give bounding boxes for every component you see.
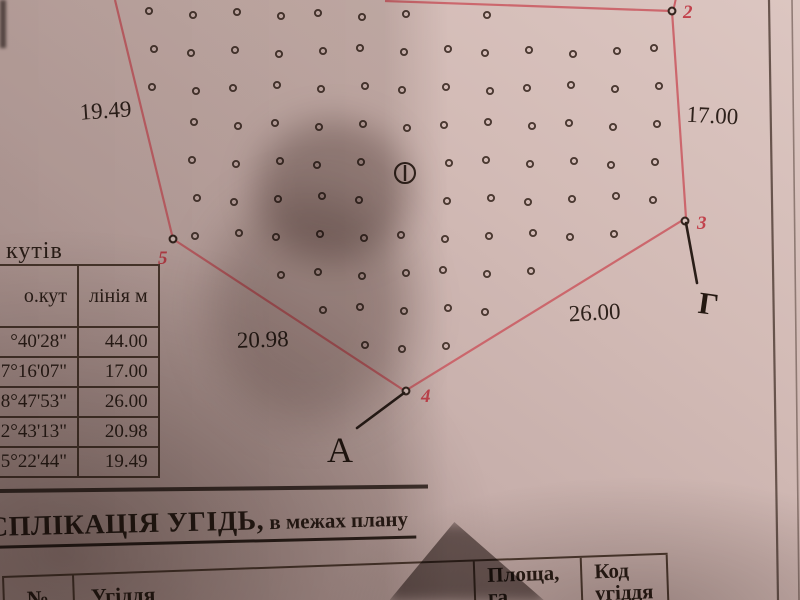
angle-value: 2°43'13" [0, 417, 78, 447]
land-use-dot [277, 158, 283, 164]
table-row: °40'28" 44.00 [0, 327, 159, 357]
land-use-dot [399, 346, 405, 352]
land-use-dot [651, 45, 657, 51]
land-use-dot [610, 124, 616, 130]
land-use-dot [274, 82, 280, 88]
land-use-dot [571, 158, 577, 164]
land-use-dot [230, 85, 236, 91]
corners-section-label: кутів [6, 238, 63, 265]
explication-heading-main: СПЛІКАЦІЯ УГІДЬ, [0, 505, 264, 543]
land-use-dot [613, 193, 619, 199]
land-use-dot [443, 343, 449, 349]
direction-tie-line [686, 223, 697, 283]
vertex-label-3: 3 [696, 213, 707, 234]
land-use-dot [482, 309, 488, 315]
land-use-dot [362, 83, 368, 89]
dimension-label: 19.49 [79, 96, 132, 125]
land-use-dot [570, 51, 576, 57]
table-row: 8°47'53" 26.00 [0, 387, 159, 417]
land-use-dot [360, 121, 366, 127]
land-use-dot [524, 85, 530, 91]
land-use-dot [151, 46, 157, 52]
code-column-header-line1: Код [582, 555, 667, 583]
land-use-dot [484, 12, 490, 18]
land-use-dot [236, 230, 242, 236]
land-use-dot [356, 197, 362, 203]
explication-heading-sub: в межах плану [264, 507, 408, 535]
length-value: 44.00 [78, 327, 159, 357]
land-use-dot [273, 234, 279, 240]
land-use-dot [445, 305, 451, 311]
angle-column-header: о.кут [0, 265, 78, 327]
land-use-dot [315, 269, 321, 275]
land-use-dot [569, 196, 575, 202]
adjacent-parcel-letter: А [327, 430, 353, 470]
land-use-dot [194, 195, 200, 201]
land-use-dot [362, 342, 368, 348]
dimension-label: 26.00 [568, 299, 621, 327]
land-use-dot [446, 160, 452, 166]
land-use-dot [320, 307, 326, 313]
land-use-dot [403, 11, 409, 17]
land-use-dot [445, 46, 451, 52]
page-frame-line [769, 0, 778, 600]
land-use-dot [361, 235, 367, 241]
dimension-label: 20.98 [236, 326, 289, 353]
land-use-dot [442, 236, 448, 242]
land-use-dot [530, 230, 536, 236]
land-use-dot [444, 198, 450, 204]
land-use-dot [272, 120, 278, 126]
land-use-dot [525, 199, 531, 205]
vertex-label-2: 2 [682, 2, 693, 23]
land-use-dot [528, 268, 534, 274]
length-value: 17.00 [78, 357, 159, 387]
land-use-dot [529, 123, 535, 129]
land-use-dot [231, 199, 237, 205]
land-use-dot [404, 125, 410, 131]
land-use-dot [568, 82, 574, 88]
land-use-dot [192, 233, 198, 239]
land-use-dot [318, 86, 324, 92]
land-use-dot [149, 84, 155, 90]
land-use-dot [359, 14, 365, 20]
land-use-dot [401, 49, 407, 55]
land-use-dot [320, 48, 326, 54]
land-use-dot [441, 122, 447, 128]
table-row: 5°22'44" 19.49 [0, 447, 159, 477]
land-use-dot [357, 45, 363, 51]
land-use-dot [188, 50, 194, 56]
land-use-dot [650, 197, 656, 203]
land-use-dot [612, 86, 618, 92]
land-use-dot [278, 272, 284, 278]
land-use-dot [403, 270, 409, 276]
land-use-dot [654, 121, 660, 127]
land-use-dot [488, 195, 494, 201]
line-length-column-header: лінія м [78, 265, 159, 327]
land-use-dot [232, 47, 238, 53]
land-use-dot [319, 193, 325, 199]
code-column-header-line2: угіддя [583, 580, 668, 600]
land-use-dot [483, 157, 489, 163]
land-use-dot [359, 273, 365, 279]
land-use-dot [443, 84, 449, 90]
parcel-boundary-line [115, 0, 686, 391]
land-use-dot [401, 308, 407, 314]
angle-value: 5°22'44" [0, 447, 78, 477]
land-use-dot [316, 124, 322, 130]
survey-document-photo: 234519.4917.0026.0020.98АГ кутів о.кут л… [0, 0, 800, 600]
land-use-dot [484, 271, 490, 277]
direction-tie-line [357, 393, 404, 428]
land-use-dot [614, 48, 620, 54]
land-use-dot [652, 159, 658, 165]
land-use-dot [357, 304, 363, 310]
page-frame-line [792, 0, 799, 600]
land-use-dot [234, 9, 240, 15]
angle-value: °40'28" [0, 327, 78, 357]
vertex-point-2 [669, 8, 676, 15]
land-use-dot [656, 83, 662, 89]
table-header-row: о.кут лінія м [0, 265, 159, 327]
table-row: 2°43'13" 20.98 [0, 417, 159, 447]
land-use-dot [317, 231, 323, 237]
number-column-header: № [4, 576, 71, 600]
land-use-dot [314, 162, 320, 168]
land-use-dot [190, 12, 196, 18]
land-use-dot [189, 157, 195, 163]
land-use-dot [315, 10, 321, 16]
land-use-dot [358, 159, 364, 165]
length-value: 20.98 [78, 417, 159, 447]
dimension-label: 17.00 [686, 102, 739, 130]
land-use-dot [399, 87, 405, 93]
land-use-dot [526, 47, 532, 53]
land-use-dot [233, 161, 239, 167]
angles-lines-table: о.кут лінія м °40'28" 44.00 7°16'07" 17.… [0, 264, 160, 478]
land-use-dot [485, 119, 491, 125]
land-use-dot [278, 13, 284, 19]
land-use-dot [611, 231, 617, 237]
land-use-dot [486, 233, 492, 239]
vertex-point-5 [170, 236, 177, 243]
vertex-label-4: 4 [420, 386, 431, 407]
land-use-dot [276, 51, 282, 57]
land-use-dot [527, 161, 533, 167]
land-use-dot [146, 8, 152, 14]
land-use-dot [235, 123, 241, 129]
land-use-dot [275, 196, 281, 202]
land-use-dot [398, 232, 404, 238]
length-value: 26.00 [78, 387, 159, 417]
land-use-dot [440, 267, 446, 273]
angle-value: 8°47'53" [0, 387, 78, 417]
angle-value: 7°16'07" [0, 357, 78, 387]
adjacent-parcel-letter: Г [696, 285, 720, 322]
land-use-dot [487, 88, 493, 94]
land-use-dot [608, 162, 614, 168]
length-value: 19.49 [78, 447, 159, 477]
area-column-header-line1: Площа, [475, 558, 579, 587]
land-use-dot [191, 119, 197, 125]
land-use-dot [482, 50, 488, 56]
land-use-dot [193, 88, 199, 94]
land-use-dot [567, 234, 573, 240]
land-use-dot [566, 120, 572, 126]
table-row: 7°16'07" 17.00 [0, 357, 159, 387]
